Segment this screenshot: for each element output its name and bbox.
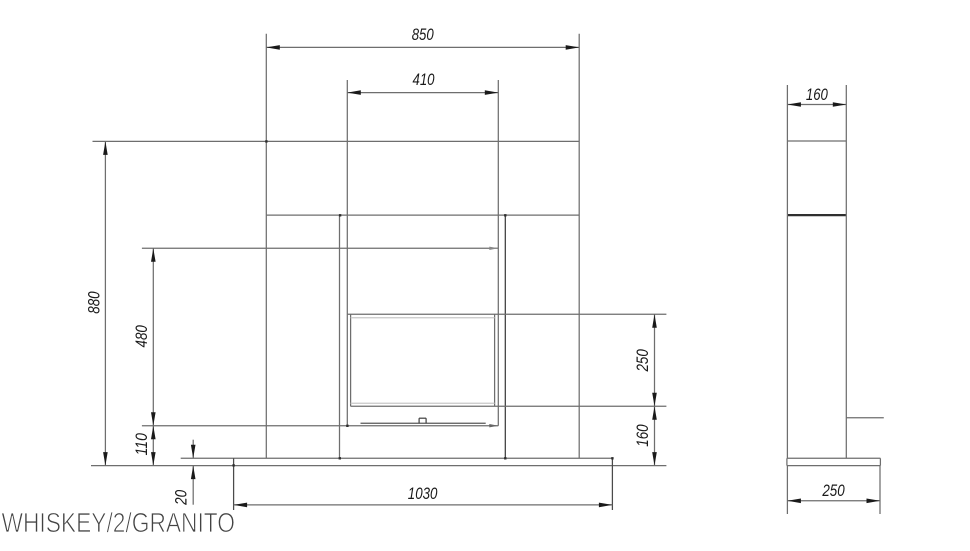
svg-text:250: 250 xyxy=(822,482,845,500)
svg-text:850: 850 xyxy=(412,26,434,44)
svg-text:480: 480 xyxy=(133,325,151,347)
svg-text:410: 410 xyxy=(413,71,435,89)
svg-text:1030: 1030 xyxy=(408,485,438,503)
svg-text:250: 250 xyxy=(634,349,652,372)
svg-text:WHISKEY/2/GRANITO: WHISKEY/2/GRANITO xyxy=(2,507,236,538)
svg-text:160: 160 xyxy=(806,86,828,104)
svg-text:20: 20 xyxy=(172,490,190,506)
svg-text:880: 880 xyxy=(86,291,104,313)
svg-text:110: 110 xyxy=(133,433,151,455)
svg-text:160: 160 xyxy=(634,424,652,446)
